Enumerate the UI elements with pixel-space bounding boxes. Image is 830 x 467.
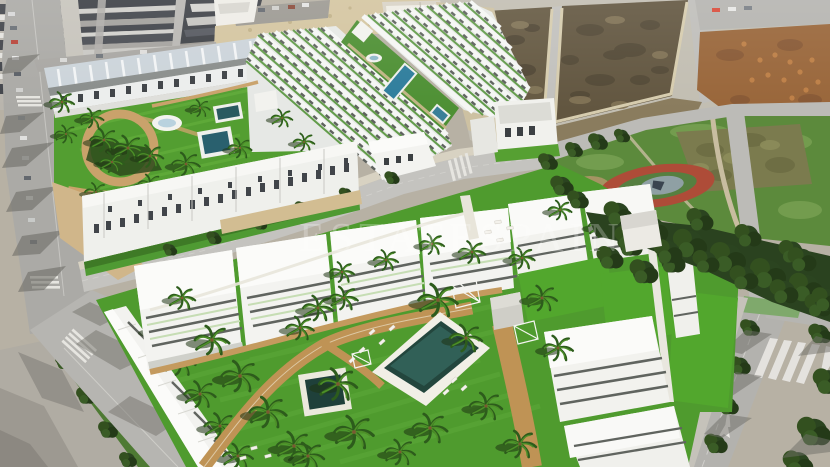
svg-text:ESTATESPAIN: ESTATESPAIN <box>299 214 624 260</box>
